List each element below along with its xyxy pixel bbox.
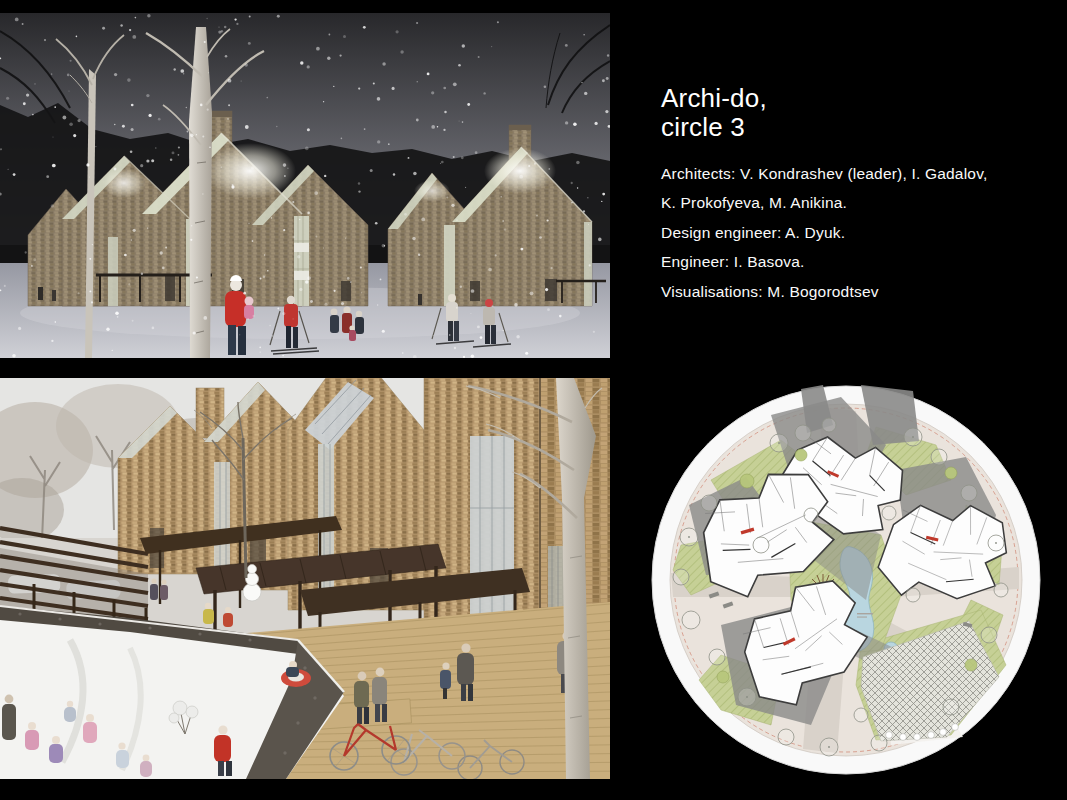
project-info: Archi-do,circle 3 Architects: V. Kondras… (661, 84, 1061, 306)
project-title-line1: Archi-do, (661, 83, 767, 113)
rendering-winter-day (0, 378, 610, 779)
rendering-winter-night (0, 13, 610, 358)
credit-visualisations: Visualisations: M. Bogorodtsev (661, 277, 1061, 306)
site-plan (651, 385, 1041, 775)
credit-design-engineer: Design engineer: A. Dyuk. (661, 218, 1061, 247)
winter-night-scene (0, 13, 610, 358)
credit-engineer: Engineer: I. Basova. (661, 247, 1061, 276)
project-title-line2: circle 3 (661, 112, 745, 142)
site-plan-circular (651, 385, 1041, 775)
credit-architects-2: K. Prokofyeva, M. Anikina. (661, 188, 1061, 217)
slide: Archi-do,circle 3 Architects: V. Kondras… (0, 0, 1067, 800)
winter-day-scene (0, 378, 610, 779)
project-title: Archi-do,circle 3 (661, 84, 1061, 142)
credit-architects: Architects: V. Kondrashev (leader), I. G… (661, 159, 1061, 188)
